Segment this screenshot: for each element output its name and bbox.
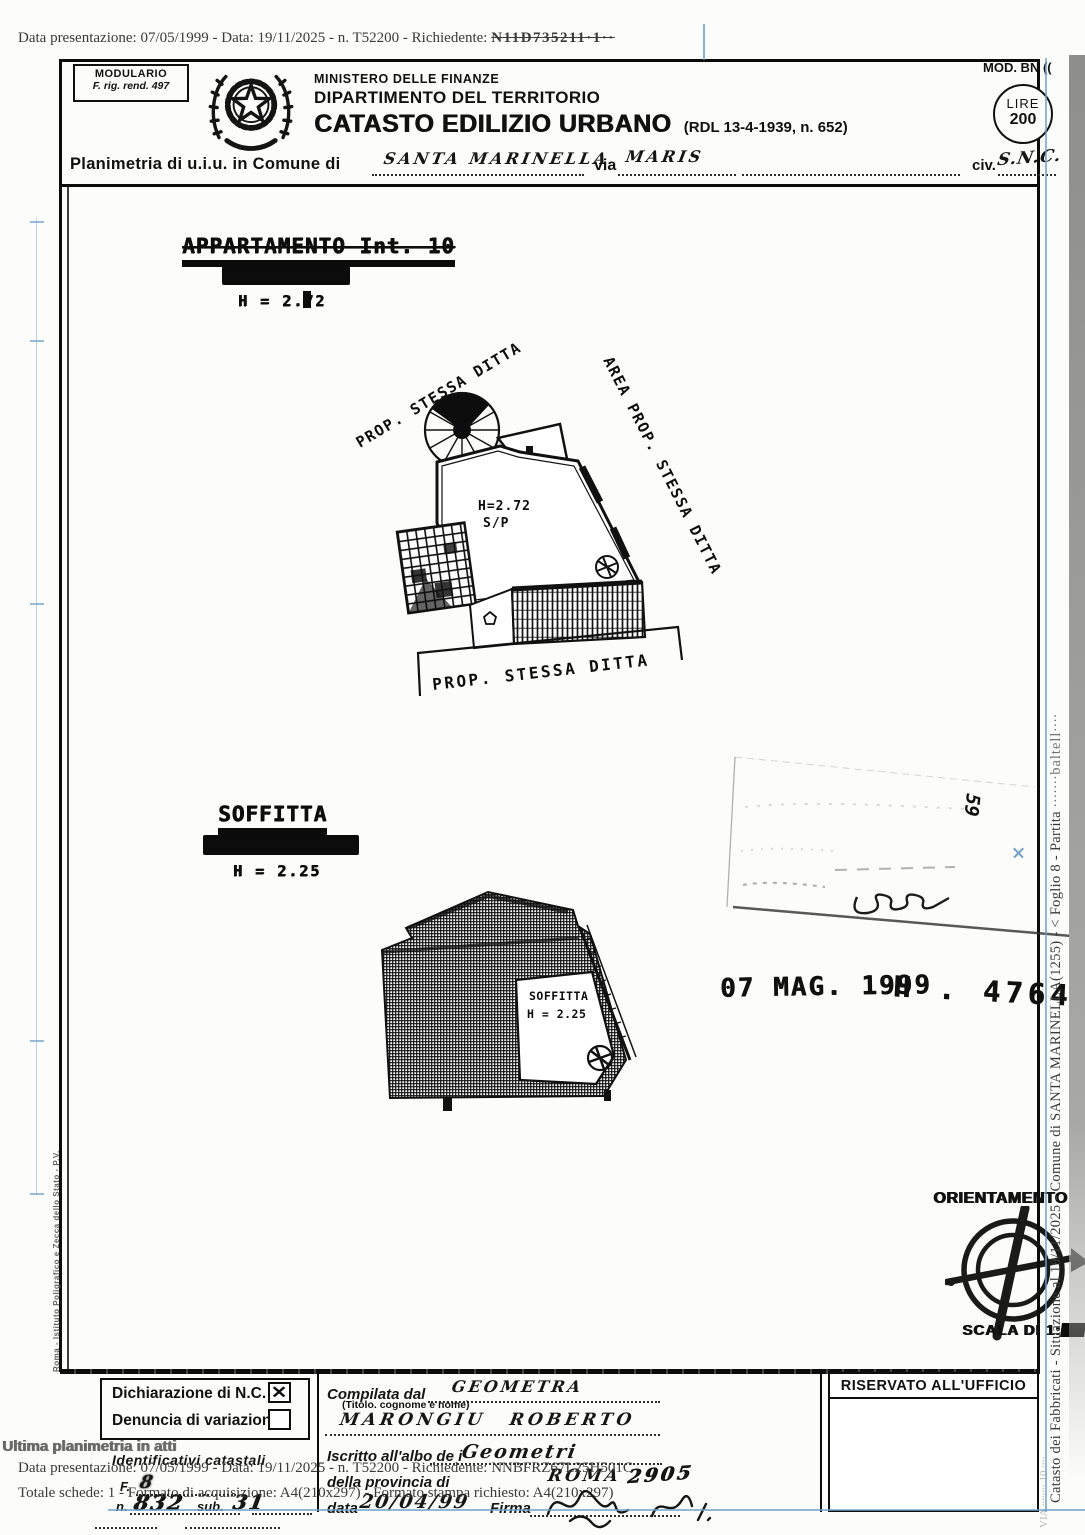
modulario-ref: F. rig. rend. 497	[75, 80, 187, 92]
plan1-floorplan-drawing: PROP. STESSA DITTA AREA PROP. STESSA DIT…	[330, 330, 750, 710]
plan2-height-label: H = 2.25	[233, 862, 321, 880]
compilata-value: GEOMETRA	[450, 1377, 585, 1396]
lire-value: 200	[995, 111, 1051, 129]
lire-label: LIRE	[995, 96, 1051, 111]
scan-edge-strip	[1069, 55, 1085, 1480]
right-margin-faint-text: VIA ∙∙∙∙∙∙∙∙ 10 ∙∙∙∙	[1038, 1457, 1050, 1528]
plan2-room-height: H = 2.25	[527, 1007, 586, 1021]
meta-top-text: Data presentazione: 07/05/1999 - Data: 1…	[18, 30, 487, 46]
watermark-line2: Totale schede: 1 - Formato di acquisizio…	[18, 1485, 614, 1502]
right-margin-garble: ∙∙∙∙∙∙∙baltell∙∙∙∙	[1048, 713, 1064, 807]
registration-tick	[30, 340, 44, 342]
dichiarazione-label: Dichiarazione di N.C.	[112, 1385, 266, 1403]
page-title-suffix: (RDL 13-4-1939, n. 652)	[684, 119, 848, 136]
plan1-height-label: H = 2.72	[238, 292, 326, 310]
plan1-title: APPARTAMENTO Int. 10	[182, 234, 455, 267]
numero-dotted-line	[130, 1512, 240, 1515]
registration-tick	[30, 221, 44, 223]
right-margin-text: Catasto dei Fabbricati - Situazione al 1…	[1048, 713, 1065, 1503]
modulario-box: MODULARIO F. rig. rend. 497	[73, 64, 189, 102]
check-x-icon: ✕	[271, 1384, 287, 1401]
meta-top-garbled: N11D735211·1··	[491, 30, 615, 46]
nome-dotted-line	[325, 1433, 660, 1436]
civ-label: civ.	[972, 157, 996, 174]
lire-stamp-circle: LIRE 200	[993, 84, 1053, 144]
printer-margin-text: Roma - Istituto Poligrafico e Zecca dell…	[52, 1150, 61, 1372]
plan1-balcony-hatched	[512, 582, 645, 644]
department-label: DIPARTIMENTO DEL TERRITORIO	[314, 88, 600, 108]
planimetria-label: Planimetria di u.i.u. in Comune di	[70, 155, 341, 174]
registration-tick	[30, 1193, 44, 1195]
registration-cross-icon	[1012, 846, 1025, 859]
frame-left-inner-border	[67, 186, 69, 1372]
plan2-tick-mark	[604, 1090, 611, 1101]
plan2-floorplan-drawing: SOFFITTA H = 2.25	[368, 888, 663, 1113]
frame-top-border	[60, 59, 1040, 62]
faint-office-stamp: 59	[715, 745, 1085, 945]
stamp-side-mark: 59	[960, 792, 984, 817]
stamp-scribble	[855, 895, 949, 914]
riservato-label: RISERVATO ALL'UFFICIO	[830, 1374, 1037, 1399]
document-meta-line-top: Data presentazione: 07/05/1999 - Data: 1…	[18, 30, 615, 47]
plan2-tick-mark	[443, 1098, 452, 1111]
via-value: MARIS	[624, 147, 705, 166]
right-margin-main: Catasto dei Fabbricati - Situazione al 1…	[1048, 811, 1064, 1503]
tecnico-nome-value: MARONGIU ROBERTO	[338, 1410, 637, 1430]
civ-dotted-line	[998, 173, 1056, 176]
comune-value: SANTA MARINELLA	[382, 149, 611, 168]
plan2-room-label: SOFFITTA	[529, 989, 588, 1003]
header-divider-rule	[60, 184, 1039, 187]
extra-dotted-line	[95, 1526, 157, 1529]
document-title-row: CATASTO EDILIZIO URBANO (RDL 13-4-1939, …	[314, 110, 848, 139]
plan2-floor-obscured: PIANO SECONDO	[203, 835, 359, 855]
italy-emblem-icon	[207, 64, 295, 156]
via-dotted-line	[618, 173, 736, 176]
extra-dotted-line	[185, 1526, 280, 1529]
mid-dotted-line	[742, 173, 960, 176]
plan1-height-blot	[303, 291, 311, 308]
form-column-divider-right	[820, 1374, 822, 1512]
sub-dotted-line	[252, 1512, 312, 1515]
registration-tick	[30, 1040, 44, 1042]
modulario-label: MODULARIO	[75, 68, 187, 80]
frame-right-border	[1037, 59, 1040, 1372]
plan1-label-prop-bottom: PROP. STESSA DITTA	[431, 650, 650, 694]
denuncia-label: Denuncia di variazione	[112, 1412, 280, 1430]
registration-line-top	[703, 24, 705, 60]
plan1-floor-obscured: PIANO PRIMO	[222, 266, 350, 285]
civ-value: S.N.C.	[996, 146, 1064, 170]
page-title: CATASTO EDILIZIO URBANO	[314, 110, 671, 138]
registration-line-bottom	[108, 1509, 1085, 1511]
cadastral-document-page: Data presentazione: 07/05/1999 - Data: 1…	[0, 0, 1085, 1535]
registration-line-right	[1045, 58, 1047, 1512]
registration-line-left	[36, 218, 37, 1195]
dichiarazione-checkbox: ✕	[268, 1382, 291, 1403]
registration-tick	[30, 603, 44, 605]
plan1-room-height: H=2.72	[478, 499, 531, 514]
signature-scribble	[540, 1476, 715, 1531]
denuncia-checkbox	[268, 1409, 291, 1430]
comune-dotted-line	[372, 173, 584, 176]
plan1-room-type: S/P	[483, 516, 509, 531]
riservato-box: RISERVATO ALL'UFFICIO	[828, 1372, 1039, 1512]
plan1-pergola-grid	[397, 523, 476, 614]
watermark-line1: Data presentazione: 07/05/1999 - Data: 1…	[18, 1460, 633, 1477]
mod-bn-label: MOD. BN ((	[983, 60, 1052, 75]
scale-label-row: SCALA DI 1:	[962, 1322, 1085, 1339]
ministry-label: MINISTERO DELLE FINANZE	[314, 72, 499, 86]
via-label: via	[594, 157, 616, 175]
plan2-title: SOFFITTA	[218, 802, 327, 835]
